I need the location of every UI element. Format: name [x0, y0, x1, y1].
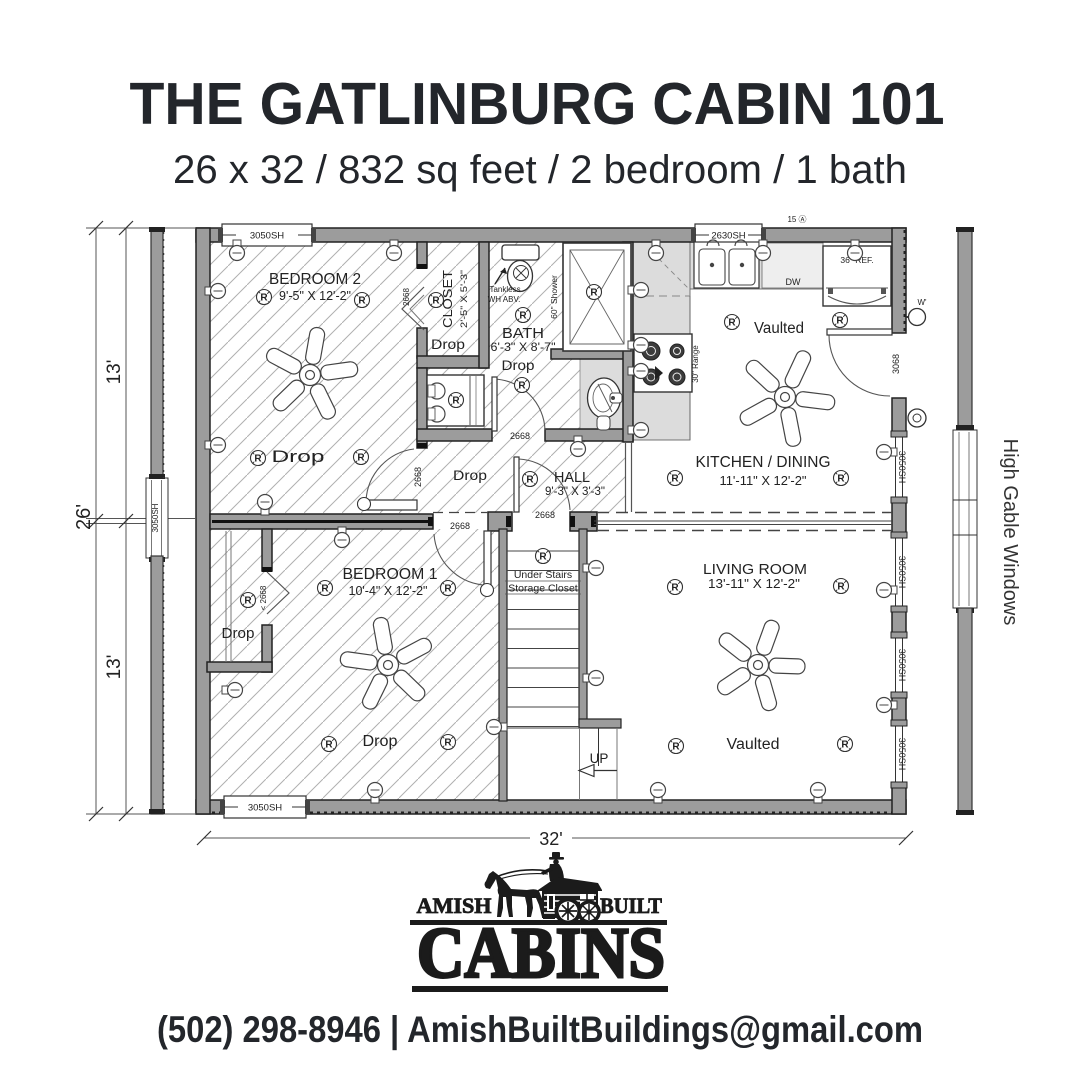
svg-text:26': 26': [73, 504, 95, 530]
svg-text:6'-3" X 8'-7": 6'-3" X 8'-7": [491, 342, 556, 354]
svg-text:13': 13': [104, 655, 125, 680]
svg-text:2668: 2668: [413, 467, 423, 487]
svg-text:Vaulted: Vaulted: [754, 320, 804, 337]
svg-text:3050SH: 3050SH: [897, 451, 907, 484]
svg-text:2668: 2668: [450, 521, 470, 531]
svg-text:High Gable Windows: High Gable Windows: [999, 439, 1021, 626]
svg-text:3068: 3068: [891, 354, 901, 374]
svg-text:10'-4" X 12'-2": 10'-4" X 12'-2": [349, 583, 428, 598]
svg-text:2'-5" X 5'-3": 2'-5" X 5'-3": [459, 270, 470, 328]
svg-text:R: R: [590, 288, 598, 299]
svg-text:Drop: Drop: [222, 626, 255, 642]
svg-text:R: R: [841, 740, 849, 751]
svg-text:W': W': [917, 298, 927, 307]
svg-text:WH ABV.: WH ABV.: [488, 295, 521, 304]
svg-text:R: R: [672, 742, 680, 753]
svg-text:CLOSET: CLOSET: [440, 270, 455, 328]
svg-text:2668: 2668: [535, 510, 555, 520]
svg-text:BEDROOM 1: BEDROOM 1: [343, 566, 438, 583]
svg-text:30" Range: 30" Range: [691, 345, 700, 383]
svg-text:Vaulted: Vaulted: [727, 736, 780, 753]
svg-text:15 Ⓐ: 15 Ⓐ: [787, 215, 806, 224]
svg-text:R: R: [671, 583, 679, 594]
svg-text:R: R: [357, 453, 365, 464]
svg-text:HALL: HALL: [554, 469, 590, 486]
svg-text:3050SH: 3050SH: [897, 738, 907, 771]
svg-text:R: R: [519, 311, 527, 322]
svg-text:Storage Closet: Storage Closet: [508, 583, 578, 595]
svg-text:9'-5" X 12'-2": 9'-5" X 12'-2": [279, 288, 351, 303]
svg-text:60" Shower: 60" Shower: [549, 275, 559, 319]
svg-text:R: R: [444, 738, 452, 749]
svg-text:R: R: [325, 740, 333, 751]
svg-text:R: R: [254, 454, 262, 465]
svg-text:CABINS: CABINS: [417, 913, 665, 993]
svg-text:3050SH: 3050SH: [897, 649, 907, 682]
svg-text:2668: 2668: [402, 288, 411, 306]
svg-text:Tankless: Tankless: [489, 285, 520, 294]
svg-text:DW: DW: [786, 277, 801, 287]
svg-text:THE GATLINBURG CABIN 101: THE GATLINBURG CABIN 101: [130, 71, 945, 137]
svg-text:R: R: [358, 296, 366, 307]
svg-text:(502) 298-8946 | AmishBuiltBui: (502) 298-8946 | AmishBuiltBuildings@gma…: [157, 1009, 923, 1051]
svg-text:UP: UP: [590, 751, 609, 766]
svg-text:R: R: [452, 396, 460, 407]
svg-text:Drop: Drop: [363, 733, 398, 750]
svg-text:R: R: [837, 474, 845, 485]
svg-text:9'-3" X 3'-3": 9'-3" X 3'-3": [545, 486, 605, 498]
svg-text:R: R: [260, 293, 268, 304]
svg-text:R: R: [244, 596, 252, 607]
svg-text:11'-11" X 12'-2": 11'-11" X 12'-2": [720, 473, 807, 488]
svg-text:KITCHEN / DINING: KITCHEN / DINING: [696, 454, 831, 471]
svg-text:R: R: [444, 584, 452, 595]
svg-text:R: R: [836, 316, 844, 327]
svg-text:Under Stairs: Under Stairs: [514, 569, 572, 581]
svg-text:BATH: BATH: [502, 325, 544, 342]
svg-text:R: R: [671, 474, 679, 485]
svg-text:13'-11" X 12'-2": 13'-11" X 12'-2": [708, 576, 800, 591]
svg-text:R: R: [728, 318, 736, 329]
svg-text:R: R: [518, 381, 526, 392]
svg-text:32': 32': [539, 829, 562, 849]
svg-text:3050SH: 3050SH: [897, 556, 907, 589]
svg-text:Drop: Drop: [272, 447, 325, 466]
svg-text:Drop: Drop: [453, 467, 487, 483]
svg-text:R: R: [526, 475, 534, 486]
svg-text:26 x 32 / 832 sq feet / 2 bedr: 26 x 32 / 832 sq feet / 2 bedroom / 1 ba…: [173, 148, 907, 192]
svg-text:3050SH: 3050SH: [248, 803, 282, 814]
svg-text:Drop: Drop: [502, 357, 535, 373]
svg-text:R: R: [837, 582, 845, 593]
svg-text:BEDROOM 2: BEDROOM 2: [269, 271, 361, 288]
svg-text:13': 13': [104, 360, 125, 385]
svg-text:R: R: [539, 552, 547, 563]
svg-text:Drop: Drop: [431, 337, 465, 352]
svg-text:2668: 2668: [510, 431, 530, 441]
svg-text:R: R: [321, 584, 329, 595]
svg-text:3050SH: 3050SH: [250, 231, 284, 242]
svg-text:3050SH: 3050SH: [151, 503, 160, 532]
svg-text:< 2668: < 2668: [259, 585, 268, 610]
